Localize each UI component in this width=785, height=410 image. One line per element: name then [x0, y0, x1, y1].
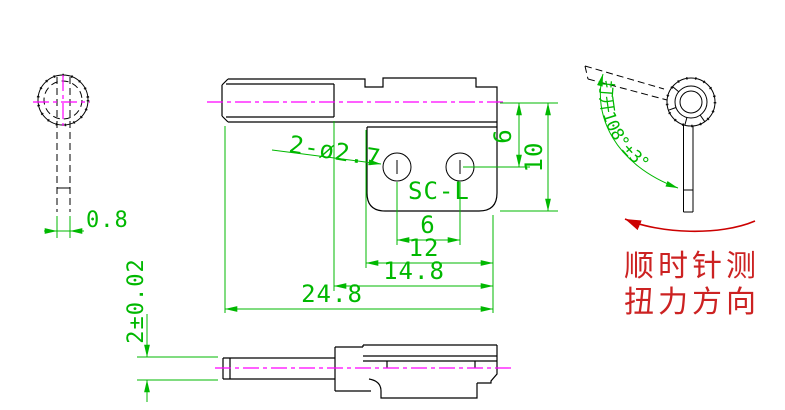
dim-text-stem-width: 0.8 — [86, 208, 129, 233]
dim-text-height-10: 10 — [520, 142, 548, 173]
torque-note-line1: 顺时针测 — [624, 250, 760, 283]
part-label: SC-L — [408, 177, 470, 205]
dim-text-24-8: 24.8 — [301, 280, 363, 308]
dim-text-thickness: 2±0.02 — [124, 258, 149, 343]
cad-drawing-canvas: 0.8 2-ø2.7 SC-L 6 12 14.8 24.8 — [0, 0, 785, 410]
dim-text-hole-offset: 6 — [489, 128, 517, 143]
drawing-background — [0, 0, 785, 410]
dim-text-14-8: 14.8 — [383, 257, 445, 285]
cad-drawing-svg: 0.8 2-ø2.7 SC-L 6 12 14.8 24.8 — [0, 0, 785, 410]
torque-note-line2: 扭力方向 — [624, 286, 760, 319]
